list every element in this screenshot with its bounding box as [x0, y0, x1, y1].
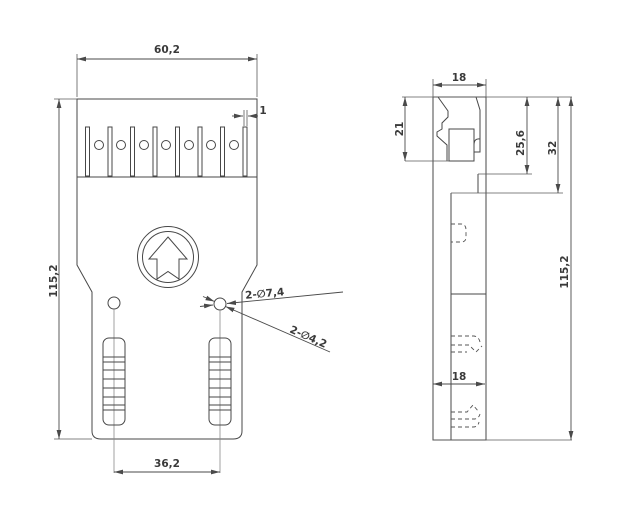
dim-slot-width: 1 [232, 105, 267, 126]
terminal-hole [185, 141, 194, 150]
hidden-latch-bottom [451, 405, 480, 427]
callout-holes-small-label: 2-∅4,2 [288, 324, 329, 351]
up-arrow-mark [138, 227, 199, 288]
callout-holes-small: 2-∅4,2 [203, 297, 330, 353]
technical-drawing-page: 60,2 1 115,2 36,2 2-∅7,4 [0, 0, 624, 525]
terminal-holes [95, 141, 239, 150]
dim-step-1: 25,6 [515, 97, 527, 174]
technical-drawing: 60,2 1 115,2 36,2 2-∅7,4 [0, 0, 624, 525]
dim-clip-height-label: 21 [394, 122, 406, 137]
dim-side-depth-top-label: 18 [452, 72, 467, 84]
hidden-latch-top [451, 224, 466, 242]
dim-side-height-label: 115,2 [559, 255, 571, 288]
dim-step-2: 32 [547, 97, 559, 193]
clip-right-claw [474, 97, 480, 152]
dim-side-depth-top: 18 [433, 72, 486, 85]
dim-side-depth-body: 18 [433, 371, 485, 384]
dim-front-height-label: 115,2 [48, 264, 60, 297]
up-arrow-icon [149, 237, 187, 279]
terminal-slot [198, 127, 202, 176]
dim-step-1-label: 25,6 [515, 130, 527, 156]
terminal-slots [86, 127, 248, 176]
terminal-slot [86, 127, 90, 176]
dim-hole-spacing: 36,2 [114, 458, 220, 472]
mounting-hole-left [108, 297, 120, 309]
terminal-hole [117, 141, 126, 150]
terminal-hole [140, 141, 149, 150]
terminal-slot [243, 127, 247, 176]
dim-side-height: 115,2 [559, 97, 571, 440]
dim-front-width: 60,2 [77, 44, 257, 97]
dim-hole-spacing-label: 36,2 [154, 458, 180, 470]
side-extension-lines [402, 79, 572, 440]
dim-step-2-label: 32 [547, 141, 559, 156]
clip-right-nub [474, 139, 480, 152]
terminal-hole [230, 141, 239, 150]
clip-left-claw [437, 97, 448, 161]
dim-clip-height: 21 [394, 97, 406, 161]
side-view: 18 21 25,6 32 115,2 18 [394, 72, 572, 440]
terminal-slot [176, 127, 180, 176]
mounting-hole-right [214, 298, 226, 310]
callout-holes-large: 2-∅7,4 [200, 286, 343, 306]
front-view: 60,2 1 115,2 36,2 2-∅7,4 [48, 44, 343, 473]
terminal-slot [153, 127, 157, 176]
terminal-hole [207, 141, 216, 150]
terminal-slot [131, 127, 135, 176]
dim-slot-width-label: 1 [259, 105, 266, 117]
dim-front-width-label: 60,2 [154, 44, 180, 56]
rail-clip-profile [437, 97, 480, 161]
hidden-latch-middle [451, 336, 482, 352]
terminal-slot [108, 127, 112, 176]
clip-foot-block [449, 129, 474, 161]
terminal-slot [221, 127, 225, 176]
dim-side-depth-body-label: 18 [452, 371, 467, 383]
terminal-hole [95, 141, 104, 150]
side-outline [433, 97, 486, 440]
terminal-hole [162, 141, 171, 150]
callout-holes-large-label: 2-∅7,4 [245, 286, 285, 302]
mark-outer-circle [138, 227, 199, 288]
